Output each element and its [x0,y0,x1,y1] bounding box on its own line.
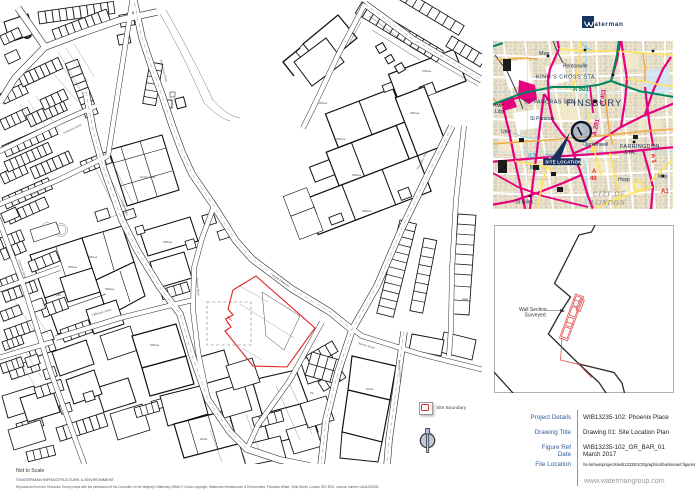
svg-text:Clerkenwell: Clerkenwell [583,142,609,148]
svg-text:Offices: Offices [362,209,372,213]
svg-text:Hotel: Hotel [462,297,468,301]
svg-text:FINSBURY: FINSBURY [567,98,623,109]
svg-text:Offices: Offices [163,240,173,244]
svg-text:Surveyed: Surveyed [525,313,546,319]
svg-text:St Pancras: St Pancras [530,116,555,122]
svg-text:Offices: Offices [88,255,98,259]
svg-text:82: 82 [528,153,536,160]
svg-text:STA.: STA. [624,150,636,156]
svg-text:Offices: Offices [105,287,115,291]
svg-text:40: 40 [590,176,597,182]
svg-text:A1: A1 [661,189,669,195]
svg-text:Offices: Offices [422,69,432,73]
svg-text:Sorting Office: Sorting Office [140,175,156,179]
svg-text:Offices: Offices [410,111,420,115]
svg-text:CITY OF: CITY OF [593,190,626,198]
svg-text:Liby: Liby [495,109,505,115]
svg-text:A: A [592,169,597,175]
svg-text:Frederick Street: Frederick Street [63,122,83,134]
svg-text:A 501: A 501 [573,87,589,93]
svg-text:Univ: Univ [501,129,512,135]
svg-text:St Giles: St Giles [516,200,534,206]
svg-text:Offices: Offices [68,265,78,269]
svg-text:Offices: Offices [318,101,328,105]
svg-text:Offices: Offices [352,173,362,177]
svg-text:Offices: Offices [336,137,346,141]
svg-text:Warner Street: Warner Street [358,341,376,350]
svg-text:Pentonville: Pentonville [563,64,588,70]
svg-text:Mount Pleasant: Mount Pleasant [271,274,290,288]
svg-text:Offices: Offices [150,343,160,347]
svg-text:KING'S CROSS STA.: KING'S CROSS STA. [536,75,597,81]
svg-text:Works: Works [366,387,374,391]
svg-text:SITE LOCATION: SITE LOCATION [545,160,581,165]
svg-text:PH: PH [310,391,314,395]
svg-text:236: 236 [56,293,61,297]
svg-text:Hosp: Hosp [618,177,630,183]
svg-text:Works: Works [200,437,208,441]
svg-text:LONDON: LONDON [590,199,625,207]
